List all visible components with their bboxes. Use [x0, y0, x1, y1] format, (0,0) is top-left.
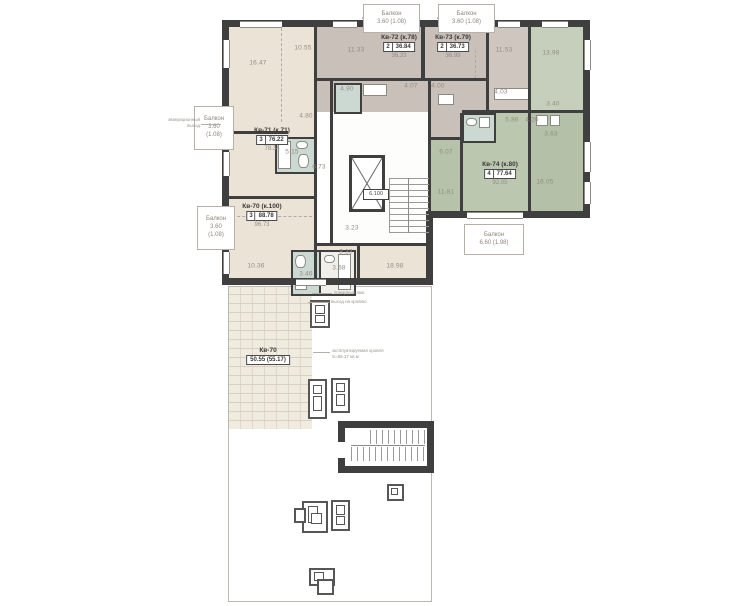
room-area: 8.33 — [339, 249, 352, 256]
wall — [330, 81, 333, 246]
hatch-note-1: пожарный люк — [334, 290, 364, 296]
sink — [466, 118, 477, 126]
room-area: 13.98 — [542, 50, 559, 57]
room-area: 5.86 — [505, 117, 518, 124]
roof-hatch-object — [310, 300, 330, 328]
area-badge: 77.64 — [494, 169, 516, 179]
balcony-title: Балкон — [198, 216, 234, 224]
room-area: 11.33 — [348, 47, 365, 54]
apartment-label-kv71[interactable]: Кв-71 (к.71) 376.22 78.34 — [254, 127, 290, 152]
room-area: 6.73 — [312, 164, 325, 171]
room-count-badge: 2 — [437, 42, 446, 52]
balcony-door — [467, 212, 523, 219]
balcony-size: 3.60 (1.08) — [439, 19, 494, 27]
main-stairs — [389, 178, 429, 233]
room-area: 3.46 — [299, 271, 312, 278]
wall — [317, 243, 430, 246]
vent-shaft — [331, 500, 350, 531]
room-area: 10.55 — [294, 45, 311, 52]
balcony-size: 3.60 — [198, 224, 234, 232]
room-area: 3.40 — [546, 101, 559, 108]
total-area: 96.73 — [242, 222, 281, 228]
area-badge: 36.73 — [447, 42, 469, 52]
leader-line — [201, 124, 221, 125]
room-area: 4.03 — [494, 89, 507, 96]
elevator-x-icon — [352, 158, 382, 209]
window — [584, 182, 591, 204]
terrace-note: эксплуатируемая кровля S=55.17 кв.м — [332, 348, 384, 359]
balcony-title: Балкон — [439, 11, 494, 19]
window — [223, 152, 230, 176]
window — [498, 21, 520, 28]
balcony-size2: (1.08) — [195, 132, 233, 140]
exit-note: эвакуационный выход — [160, 117, 200, 128]
leader-line — [313, 352, 330, 353]
roof-stair-flight-lower — [351, 447, 425, 461]
leader-line — [308, 302, 329, 303]
area-badge: 88.78 — [256, 211, 278, 221]
window — [240, 21, 282, 28]
balcony-size: 3.60 — [195, 124, 233, 132]
wardrobe — [550, 115, 560, 126]
window — [223, 40, 230, 68]
apartment-label-kv70[interactable]: Кв-70 (к.100) 388.78 96.73 — [242, 203, 281, 228]
room-area: 6.07 — [439, 149, 452, 156]
total-area: 36.99 — [435, 53, 471, 59]
dashed-divider — [281, 28, 283, 122]
room-count-badge: 3 — [246, 211, 255, 221]
wall — [460, 113, 463, 214]
room-area: 3.68 — [332, 265, 345, 272]
balcony-size2: (1.08) — [198, 232, 234, 240]
balcony-label-top-1: Балкон 3.60 (1.08) — [363, 4, 420, 33]
room-area: 4.20 — [525, 117, 538, 124]
room-count-badge: 4 — [484, 169, 493, 179]
terrace-door — [296, 279, 326, 286]
wall — [430, 137, 462, 140]
balcony-label-left-1: Балкон 3.60 (1.08) — [194, 106, 234, 150]
apartment-name: Кв-73 (к.79) — [435, 34, 471, 41]
area-badge: 36.84 — [393, 42, 415, 52]
window — [223, 252, 230, 274]
elevator-shaft — [349, 155, 385, 212]
core-area-label: 6.100 — [363, 189, 389, 200]
apartment-name: Кв-74 (к.80) — [482, 161, 518, 168]
exit-note-line2: выход — [160, 123, 200, 129]
total-area: 36.33 — [381, 53, 417, 59]
vent-shaft — [331, 378, 350, 413]
floor-plan: 6.100 Балкон 3.60 (1.08) Балкон 3.60 (1.… — [0, 0, 750, 606]
vent-shaft — [387, 484, 404, 501]
wall — [462, 110, 586, 113]
room-grey-mid — [430, 112, 462, 137]
wall — [317, 78, 487, 81]
room-green-right — [530, 113, 586, 214]
room-area: 11.81 — [438, 189, 455, 196]
room-count-badge: 2 — [383, 42, 392, 52]
kitchen-counter — [363, 84, 387, 96]
roof-stair-divider — [351, 445, 425, 446]
balcony-label-left-2: Балкон 3.60 (1.08) — [197, 206, 235, 250]
vent-shaft — [317, 579, 334, 595]
sink — [324, 255, 335, 263]
window — [584, 40, 591, 70]
wall — [421, 24, 425, 80]
room-area: 18.98 — [386, 263, 403, 270]
washer — [479, 117, 490, 128]
room-area: 4.00 — [431, 83, 444, 90]
wall — [222, 278, 433, 285]
terrace-note-line2: S=55.17 кв.м — [332, 354, 384, 360]
kitchen-counter — [438, 94, 454, 105]
wall — [486, 24, 489, 112]
room-area: 16.05 — [536, 179, 553, 186]
balcony-size: 3.60 (1.08) — [364, 19, 419, 27]
apartment-name: Кв-70 (к.100) — [242, 203, 281, 210]
window — [333, 21, 357, 28]
area-badge: 76.22 — [266, 135, 288, 145]
room-count-badge: 3 — [256, 135, 265, 145]
room-green-topright — [530, 24, 586, 112]
room-area: 11.53 — [496, 47, 513, 54]
apartment-label-kv72[interactable]: Кв-72 (к.78) 236.84 36.33 — [381, 34, 417, 59]
roof-stairwell-door-gap — [338, 442, 345, 458]
room-area: 3.23 — [345, 225, 358, 232]
leader-line — [312, 293, 332, 294]
balcony-title: Балкон — [364, 11, 419, 19]
toilet — [298, 154, 309, 168]
room-area: 16.47 — [249, 60, 266, 67]
room-area: 10.36 — [247, 263, 264, 270]
room-area: 4.80 — [299, 113, 312, 120]
apartment-name: Кв-71 (к.71) — [254, 127, 290, 134]
terrace-label-kv70[interactable]: Кв-70 50.55 (55.17) — [246, 347, 290, 365]
dashed-divider — [475, 50, 477, 78]
balcony-label-right: Балкон 6.60 (1.98) — [464, 224, 524, 255]
roof-stair-flight-upper — [370, 430, 425, 444]
window — [542, 21, 568, 28]
vent-shaft-tab — [294, 508, 306, 523]
main-stairs-divider — [408, 178, 409, 233]
window — [584, 142, 591, 172]
room-area: 4.90 — [340, 86, 353, 93]
terrace-note-line1: эксплуатируемая кровля — [332, 348, 384, 354]
room-area: 4.07 — [404, 83, 417, 90]
area-badge: 50.55 (55.17) — [246, 355, 290, 365]
total-area: 78.34 — [254, 146, 290, 152]
total-area: 92.05 — [482, 180, 518, 186]
balcony-title: Балкон — [195, 116, 233, 124]
wall — [228, 196, 316, 199]
vent-shaft — [308, 379, 327, 419]
apartment-name: Кв-70 — [246, 347, 290, 354]
room-area: 3.63 — [544, 131, 557, 138]
balcony-size: 6.60 (1.98) — [465, 240, 523, 248]
apartment-name: Кв-72 (к.78) — [381, 34, 417, 41]
balcony-title: Балкон — [465, 232, 523, 240]
apartment-label-kv73[interactable]: Кв-73 (к.79) 236.73 36.99 — [435, 34, 471, 59]
wall — [357, 246, 360, 282]
apartment-label-kv74[interactable]: Кв-74 (к.80) 477.64 92.05 — [482, 161, 518, 186]
balcony-label-top-2: Балкон 3.60 (1.08) — [438, 4, 495, 33]
toilet — [295, 255, 306, 268]
hatch-note-2: выход на кровлю — [331, 299, 367, 305]
